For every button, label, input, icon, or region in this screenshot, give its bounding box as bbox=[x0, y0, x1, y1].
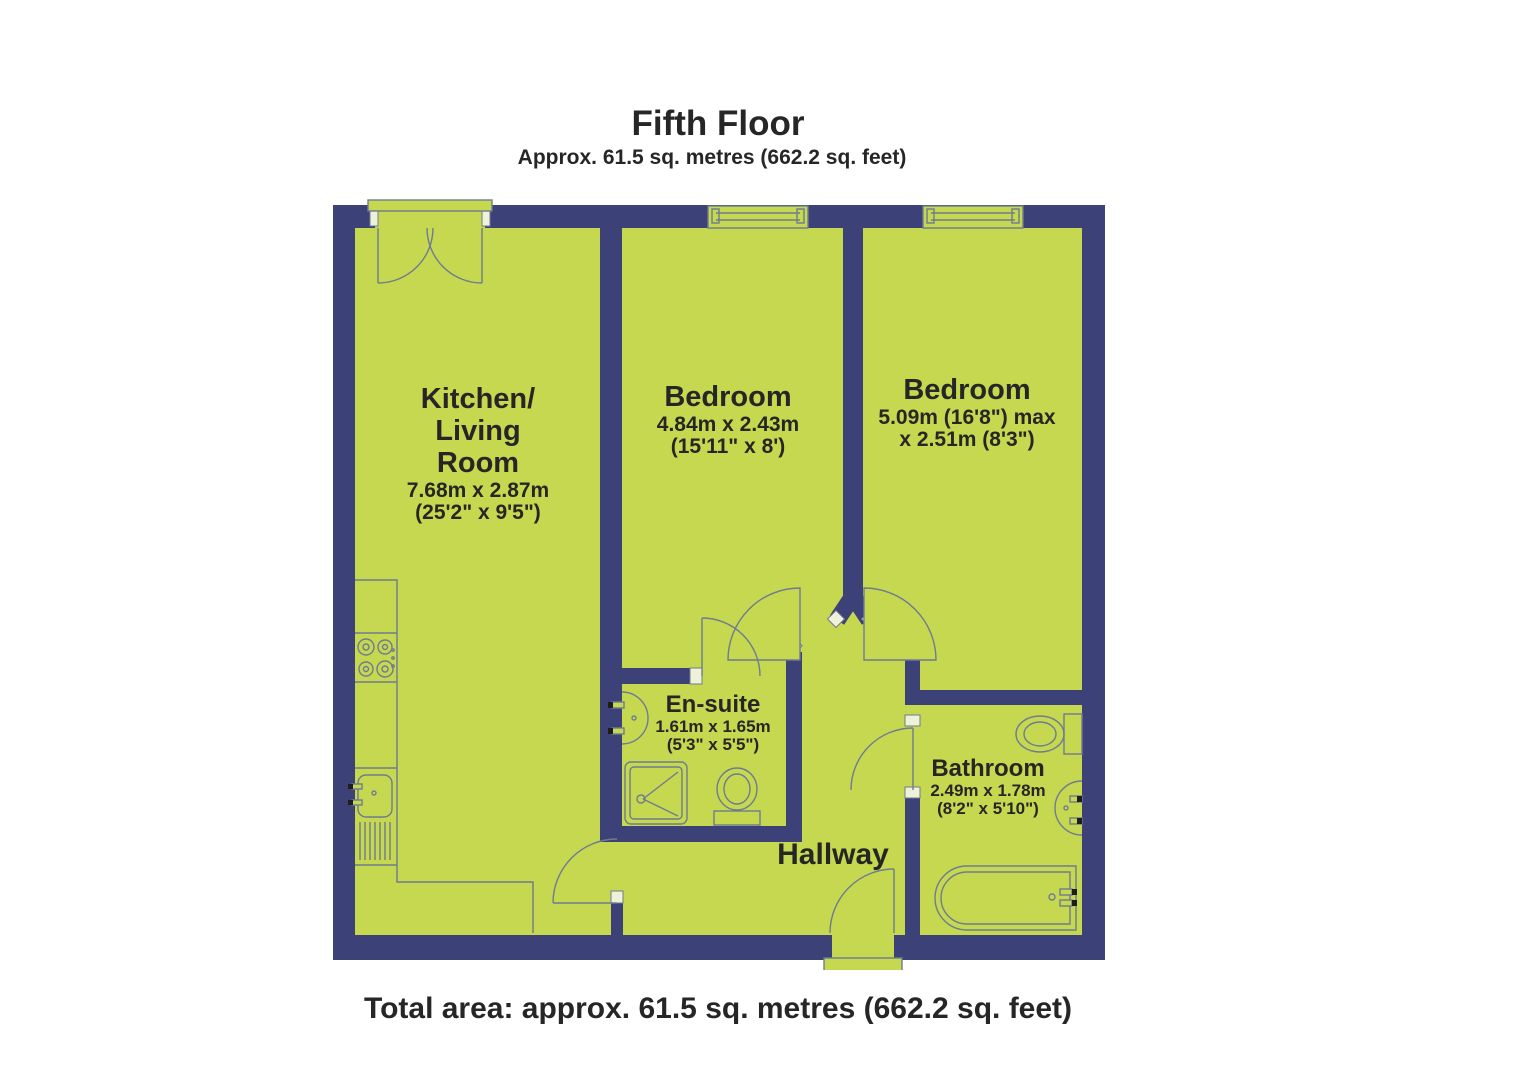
window-icon bbox=[708, 206, 808, 228]
room-dimensions: (15'11" x 8') bbox=[657, 436, 799, 458]
label-kitchen-living-room: Kitchen/ Living Room 7.68m x 2.87m (25'2… bbox=[407, 384, 549, 524]
label-bedroom-2: Bedroom 5.09m (16'8") max x 2.51m (8'3") bbox=[878, 375, 1055, 451]
room-dimensions: 7.68m x 2.87m bbox=[407, 480, 549, 502]
label-bathroom: Bathroom 2.49m x 1.78m (8'2" x 5'10") bbox=[930, 756, 1045, 818]
room-dimensions: x 2.51m (8'3") bbox=[878, 429, 1055, 451]
room-dimensions: (8'2" x 5'10") bbox=[930, 800, 1045, 818]
room-name: Bedroom bbox=[878, 375, 1055, 407]
room-name: Hallway bbox=[777, 838, 889, 871]
room-dimensions: (25'2" x 9'5") bbox=[407, 502, 549, 524]
room-dimensions: 2.49m x 1.78m bbox=[930, 782, 1045, 800]
window-icon bbox=[923, 206, 1023, 228]
label-hallway: Hallway bbox=[777, 838, 889, 871]
room-name: Living bbox=[407, 416, 549, 448]
room-dimensions: 5.09m (16'8") max bbox=[878, 407, 1055, 429]
room-name: En-suite bbox=[655, 692, 770, 718]
room-name: Kitchen/ bbox=[407, 384, 549, 416]
room-dimensions: (5'3" x 5'5") bbox=[655, 736, 770, 754]
page-subtitle: Approx. 61.5 sq. metres (662.2 sq. feet) bbox=[518, 146, 907, 170]
drainer-lines bbox=[360, 822, 390, 860]
page-title: Fifth Floor bbox=[631, 104, 804, 144]
floor-plan-drawing bbox=[330, 195, 1110, 970]
label-bedroom-1: Bedroom 4.84m x 2.43m (15'11" x 8') bbox=[657, 382, 799, 458]
room-dimensions: 4.84m x 2.43m bbox=[657, 414, 799, 436]
floor-plan-page: Fifth Floor Approx. 61.5 sq. metres (662… bbox=[0, 0, 1528, 1080]
room-name: Bedroom bbox=[657, 382, 799, 414]
label-ensuite: En-suite 1.61m x 1.65m (5'3" x 5'5") bbox=[655, 692, 770, 754]
room-dimensions: 1.61m x 1.65m bbox=[655, 718, 770, 736]
room-name: Bathroom bbox=[930, 756, 1045, 782]
room-name: Room bbox=[407, 448, 549, 480]
total-area-text: Total area: approx. 61.5 sq. metres (662… bbox=[364, 992, 1072, 1026]
entrance-door-opening bbox=[832, 933, 894, 960]
